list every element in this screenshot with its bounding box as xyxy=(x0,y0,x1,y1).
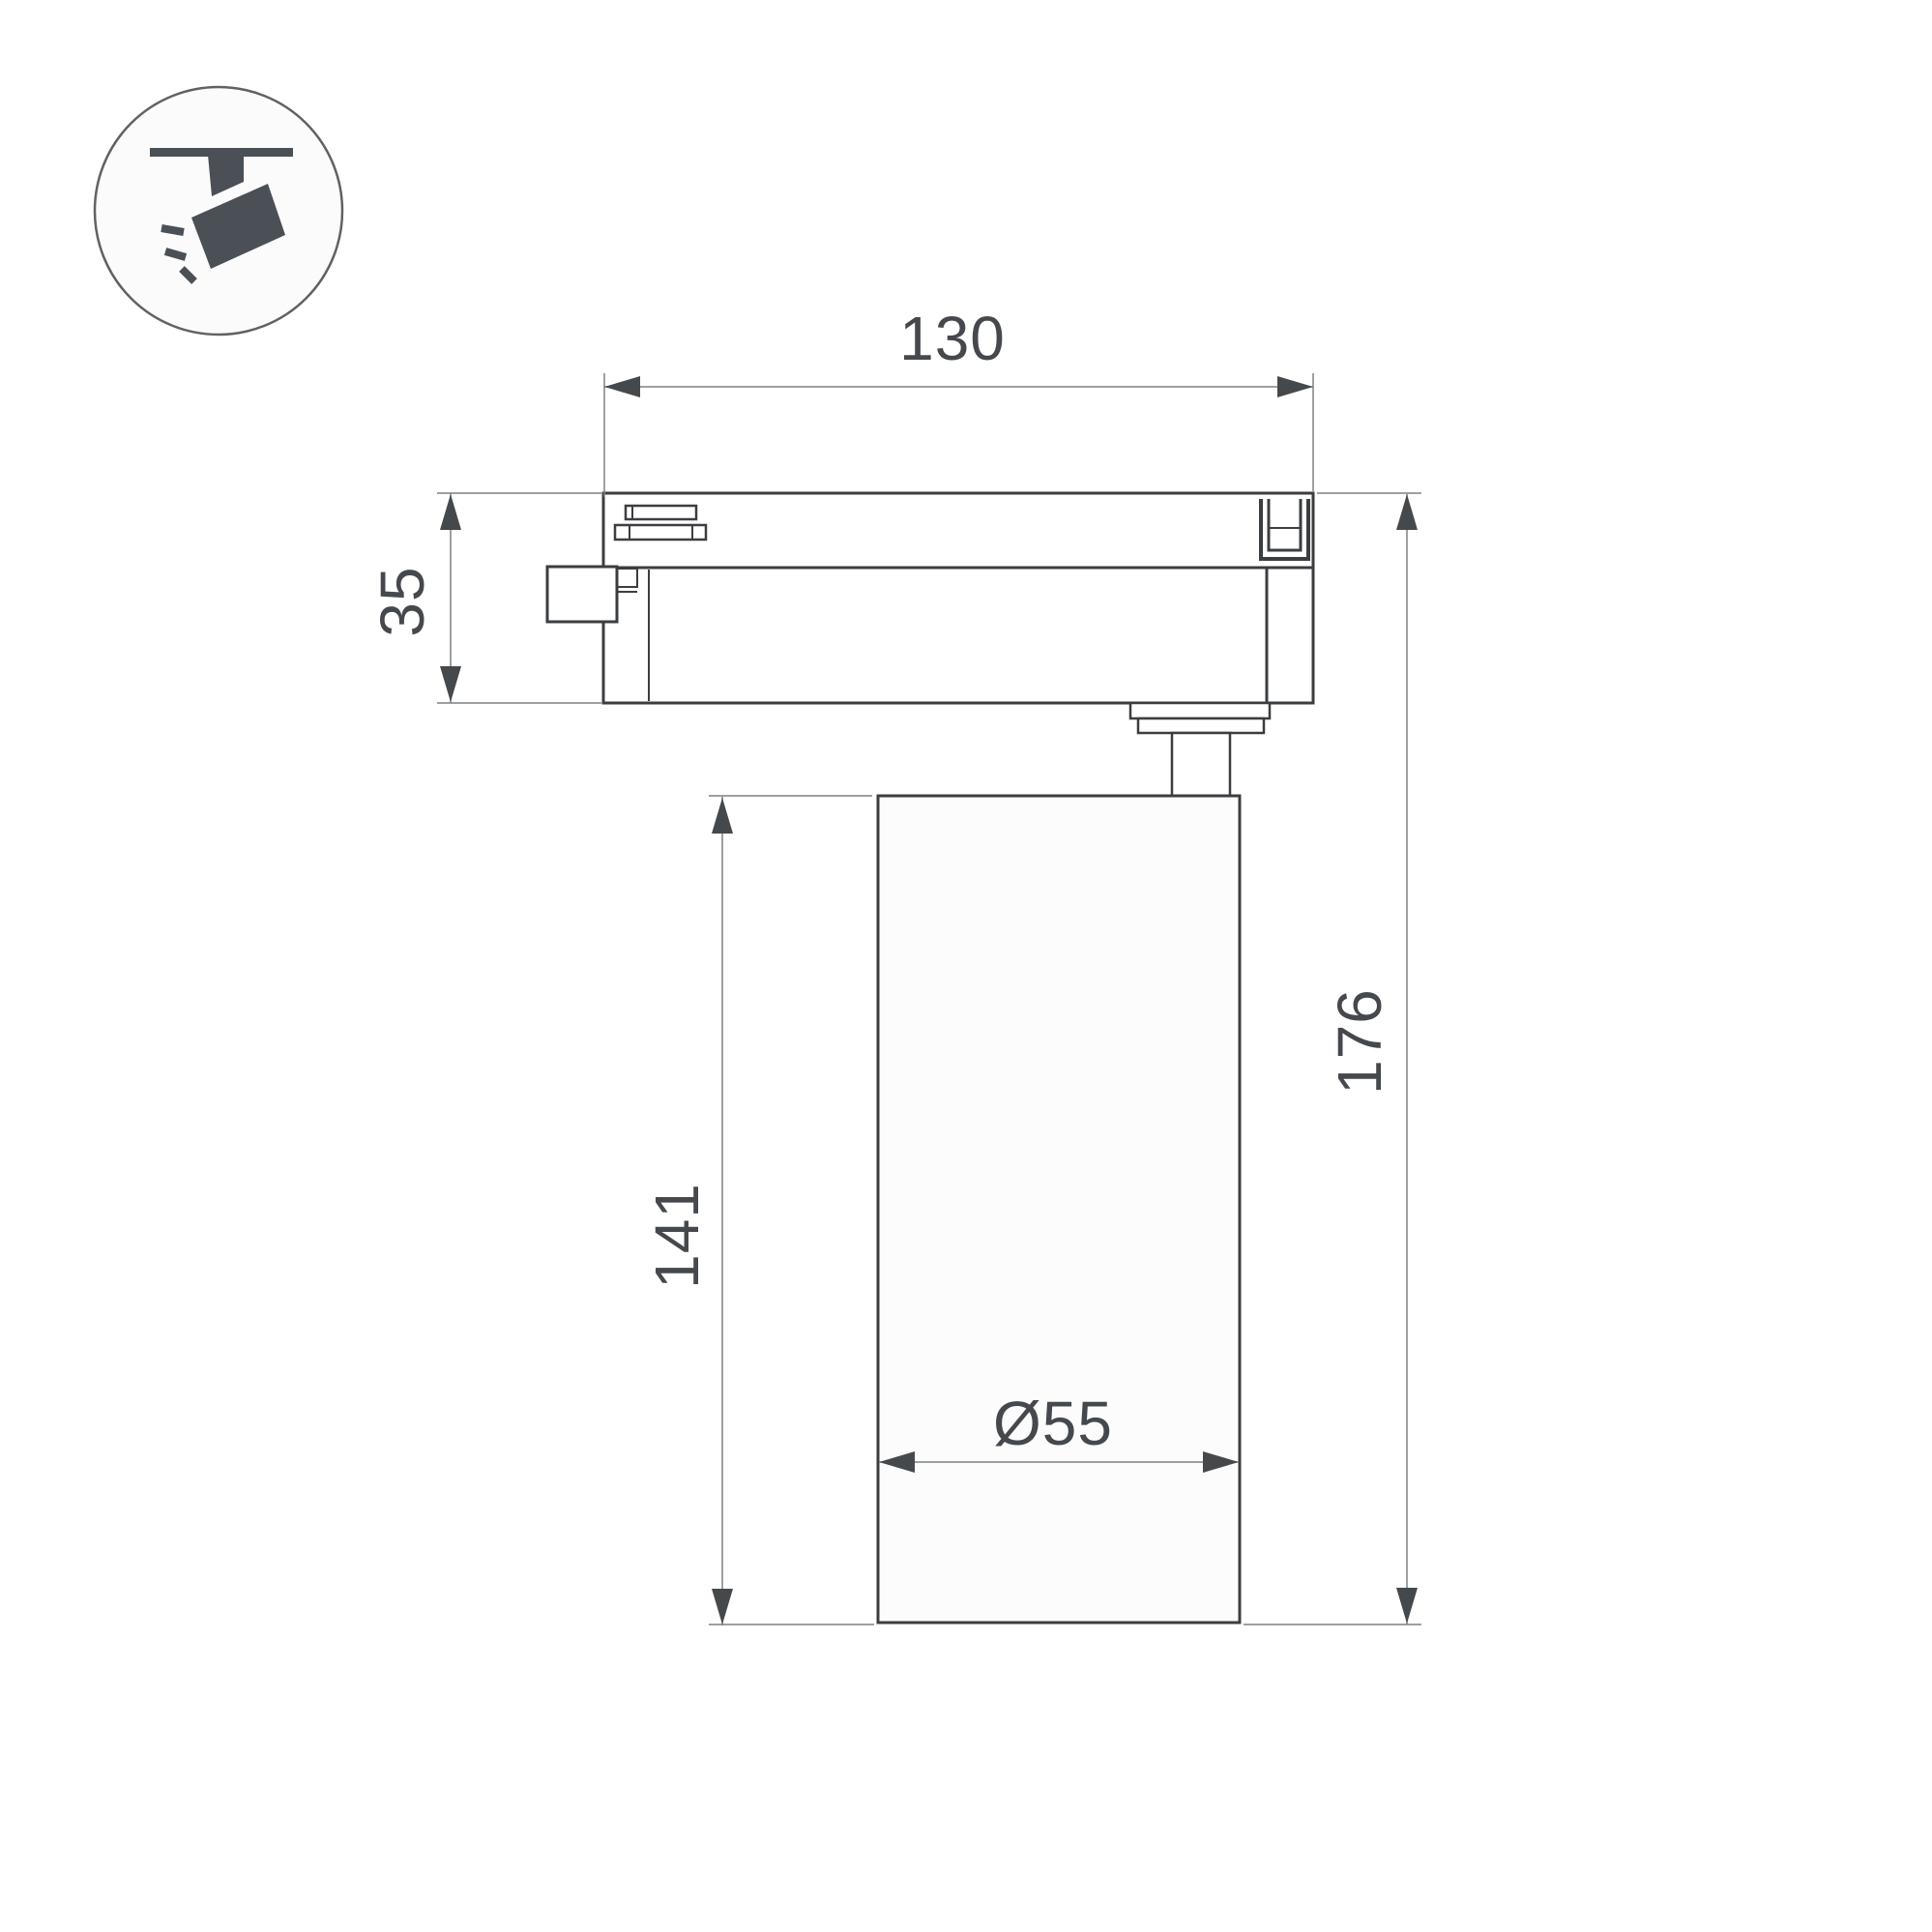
dim-body-height-label: 141 xyxy=(642,1183,712,1289)
pivot-stem xyxy=(1172,733,1230,798)
track-adapter-housing xyxy=(603,568,1267,703)
track-adapter-housing-right-cap xyxy=(1267,568,1313,703)
drawing-canvas: 130 35 141 176 Ø55 xyxy=(0,0,1932,1932)
fixture-outline xyxy=(547,493,1313,1623)
arrowhead-top xyxy=(1396,494,1418,530)
pivot-flange-upper xyxy=(1130,703,1270,718)
arrowhead-bottom xyxy=(1396,1588,1418,1624)
arrowhead-top xyxy=(440,494,461,530)
contact-clip-1 xyxy=(626,506,696,519)
dim-diameter-label: Ø55 xyxy=(993,1389,1113,1458)
arrowhead-bottom xyxy=(712,1589,733,1625)
pivot-flange-lower xyxy=(1138,718,1264,733)
dimension-track-width: 130 xyxy=(604,304,1313,497)
dimension-body-height: 141 xyxy=(642,796,874,1625)
arrowhead-bottom xyxy=(440,666,461,702)
arrowhead-top xyxy=(712,798,733,834)
arrowhead-right xyxy=(1277,376,1313,397)
technical-drawing: 130 35 141 176 Ø55 xyxy=(0,0,1932,1932)
dim-track-width-label: 130 xyxy=(899,304,1006,373)
dim-adapter-height-label: 35 xyxy=(367,566,437,636)
release-lever xyxy=(547,567,617,622)
track-spotlight-icon xyxy=(95,87,342,335)
icon-light-ray-1 xyxy=(161,228,184,232)
arrowhead-left xyxy=(604,376,640,397)
track-adapter-upper-section xyxy=(603,493,1313,568)
dim-total-height-label: 176 xyxy=(1325,988,1394,1095)
lamp-cylinder-body xyxy=(878,796,1240,1623)
